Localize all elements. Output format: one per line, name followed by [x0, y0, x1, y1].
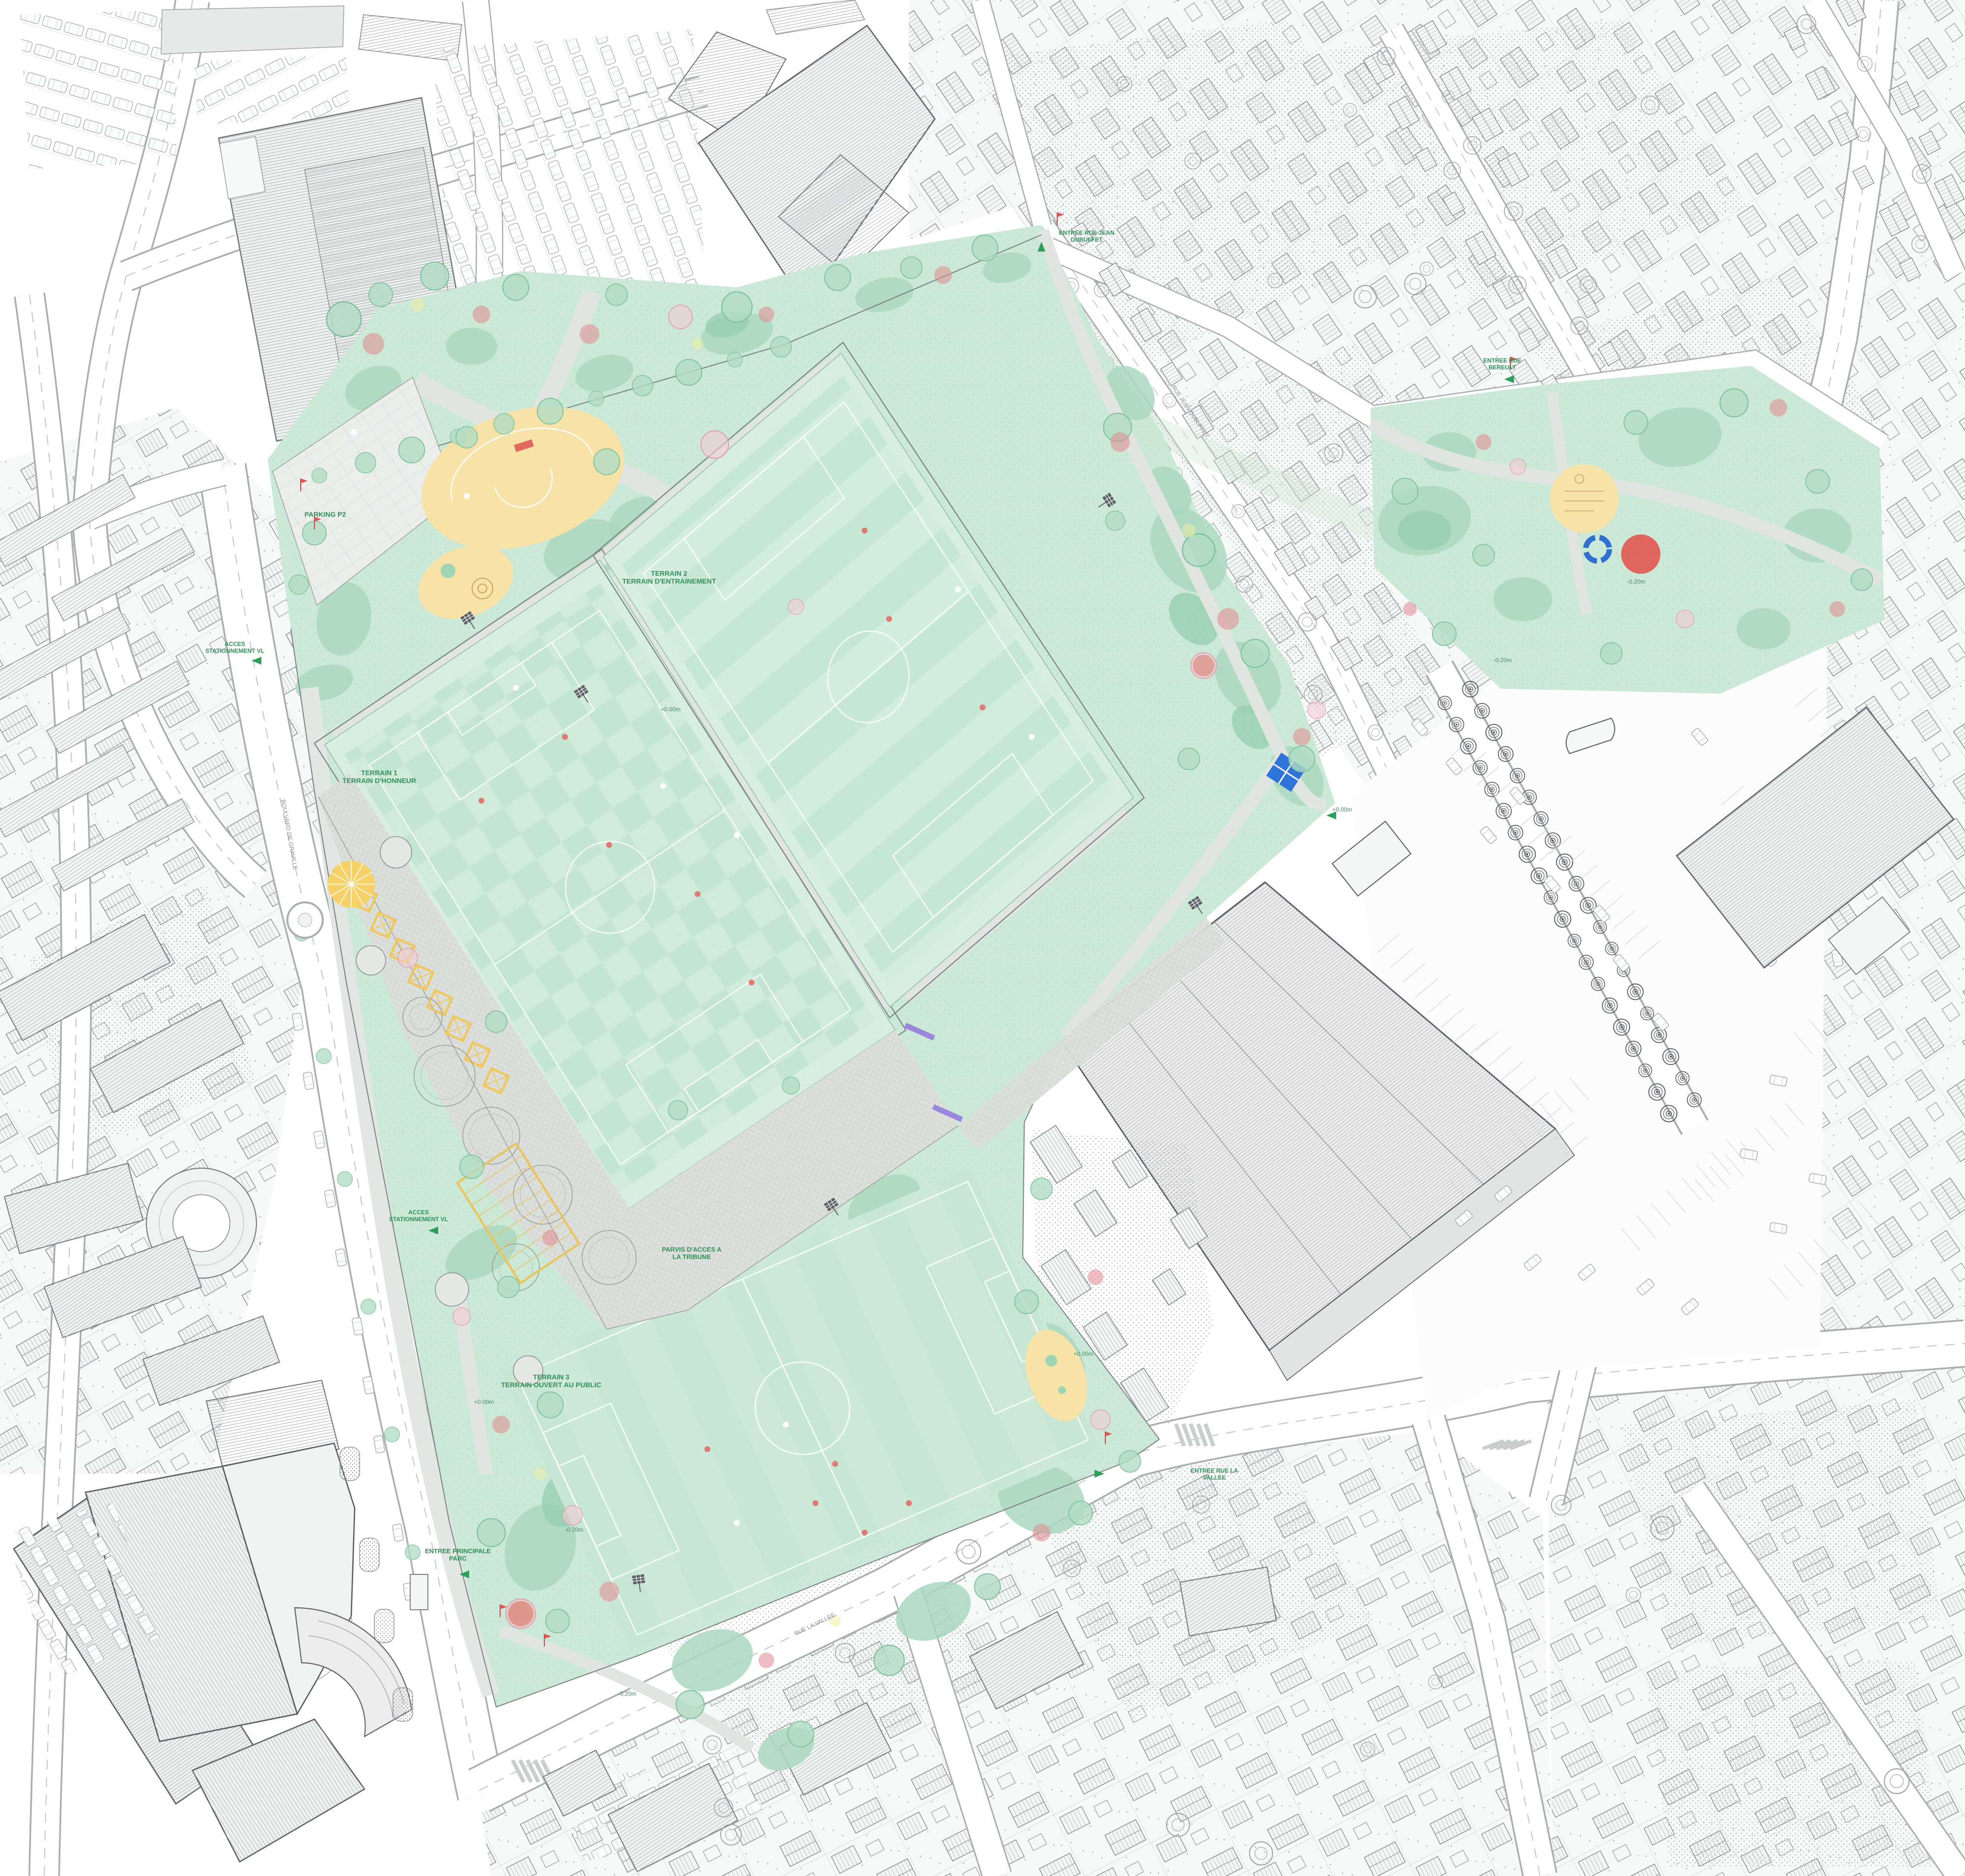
- svg-text:+0.00m: +0.00m: [474, 1399, 494, 1405]
- svg-text:-0.20m: -0.20m: [565, 1526, 583, 1533]
- svg-text:-0.20m: -0.20m: [618, 1690, 636, 1697]
- svg-text:+0.00m: +0.00m: [1073, 1350, 1093, 1357]
- svg-text:-0.20m: -0.20m: [1493, 657, 1512, 664]
- svg-text:-0.20m: -0.20m: [1627, 578, 1645, 585]
- svg-text:+0.00m: +0.00m: [661, 706, 680, 713]
- svg-text:+0.00m: +0.00m: [1332, 806, 1352, 813]
- svg-text:PARKING P2: PARKING P2: [305, 510, 346, 518]
- svg-text:ENTREE RUEBEREULT: ENTREE RUEBEREULT: [1483, 357, 1521, 371]
